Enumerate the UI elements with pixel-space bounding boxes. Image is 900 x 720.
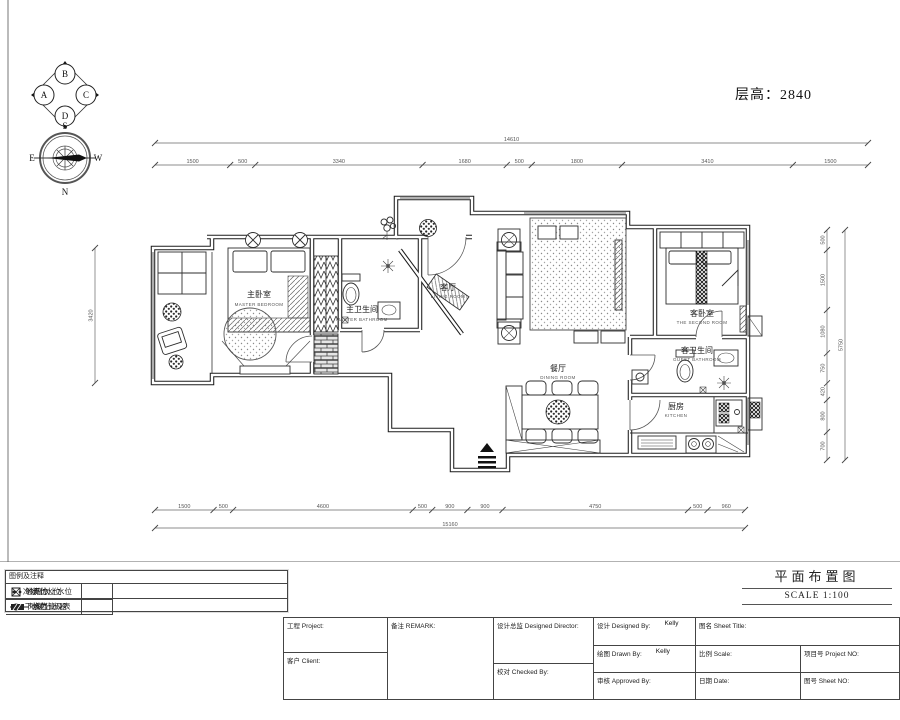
svg-text:4750: 4750 — [589, 504, 601, 510]
svg-text:500: 500 — [821, 235, 827, 244]
balcony-furniture — [157, 252, 206, 369]
drawing-sheet: B A C D S N E W — [0, 0, 900, 720]
compass-n: N — [62, 187, 69, 197]
tb-checked: 校对 Checked By: — [494, 664, 594, 699]
title-block: 工程 Project: 客户 Client: 备注 REMARK: 设计总监 D… — [283, 617, 900, 700]
room-label-kitchen: 厨房 — [668, 401, 684, 411]
svg-text:3340: 3340 — [333, 159, 345, 165]
plan-title: 平面布置图 — [742, 566, 892, 589]
svg-text:1800: 1800 — [571, 159, 583, 165]
room-sublabel-kitchen: KITCHEN — [665, 413, 688, 418]
room-sublabel-guest-bath: GUEST BATHROOM — [673, 357, 721, 362]
tb-sheet-title: 图名 Sheet Title: — [696, 618, 899, 646]
heating-manifold-icon — [10, 602, 26, 612]
svg-text:900: 900 — [445, 504, 454, 510]
floor-drain-icon — [700, 387, 706, 393]
room-sublabel-second-bedroom: THE SECOND ROOM — [677, 320, 728, 325]
floor-height-note: 层高：2840 — [735, 84, 812, 104]
plant-icon — [169, 355, 183, 369]
brick-wall — [314, 334, 338, 374]
tb-project-no: 项目号 Project NO: — [801, 646, 899, 673]
svg-text:15160: 15160 — [442, 522, 457, 528]
svg-text:800: 800 — [821, 411, 827, 420]
tv-living — [615, 240, 622, 310]
legend-item: 地暖分水器 — [6, 599, 102, 615]
tb-director: 设计总监 Designed Director: — [494, 618, 594, 664]
compass-w: W — [94, 153, 103, 163]
drawn-by-value: Kelly — [656, 648, 670, 655]
tb-approved: 审核 Approved By: — [594, 673, 696, 699]
floor-drain-icon — [738, 427, 744, 433]
plant-icon — [546, 400, 570, 424]
tb-date: 日期 Date: — [696, 673, 801, 699]
room-label-master-bath: 主卫生间 — [346, 304, 378, 314]
tb-remark: 备注 REMARK: — [388, 618, 494, 699]
compass-s: S — [62, 121, 67, 131]
wash-stand — [632, 370, 648, 384]
svg-text:500: 500 — [418, 504, 427, 510]
kitchen-fixtures — [630, 397, 748, 453]
tv-master — [240, 366, 290, 374]
room-label-guest-bath: 客卫生间 — [681, 345, 713, 355]
plant-icon — [420, 220, 437, 237]
plan-scale: SCALE 1:100 — [742, 589, 892, 605]
tb-scale: 比例 Scale: — [696, 646, 801, 673]
svg-text:1500: 1500 — [186, 159, 198, 165]
svg-text:700: 700 — [821, 441, 827, 450]
svg-text:1500: 1500 — [824, 159, 836, 165]
tb-project: 工程 Project: — [284, 618, 388, 653]
svg-text:420: 420 — [821, 387, 827, 396]
room-sublabel-master-bedroom: MASTER BEDROOM — [235, 302, 284, 307]
axis-diamond: B A C D — [31, 61, 99, 129]
room-sublabel-living: LIVING ROOM — [431, 294, 465, 299]
svg-text:1500: 1500 — [821, 274, 827, 286]
svg-text:500: 500 — [693, 504, 702, 510]
compass-rose-icon: S N E W — [29, 121, 103, 197]
axis-letter-a: A — [41, 90, 48, 100]
tv-bedroom — [740, 306, 746, 332]
svg-text:1680: 1680 — [459, 159, 471, 165]
living-room-furniture — [497, 218, 626, 344]
dining-furniture — [506, 381, 600, 453]
svg-text:4600: 4600 — [317, 504, 329, 510]
svg-text:500: 500 — [238, 159, 247, 165]
room-label-living: 客厅 — [440, 282, 456, 292]
svg-text:1500: 1500 — [178, 504, 190, 510]
legend-table: 图例及注释 地漏位 冷热水上水位 冷水上水位 下水位 燃气管及表 — [5, 570, 288, 612]
plant-icon — [163, 303, 181, 321]
compass-e: E — [29, 153, 35, 163]
svg-text:3420: 3420 — [89, 309, 95, 321]
axis-letter-b: B — [62, 69, 68, 79]
entrance-symbol — [478, 443, 496, 469]
cold-water-icon — [10, 587, 20, 597]
svg-text:960: 960 — [722, 504, 731, 510]
room-sublabel-dining: DINING ROOM — [540, 375, 575, 380]
tb-sheet-no: 图号 Sheet NO: — [801, 673, 899, 699]
room-sublabel-master-bath: MASTER BATHROOM — [336, 317, 388, 322]
svg-text:1080: 1080 — [821, 325, 827, 337]
room-label-dining: 餐厅 — [550, 364, 566, 373]
plan-caption: 平面布置图 SCALE 1:100 — [742, 566, 892, 605]
tb-drawn: 绘图 Drawn By:Kelly — [594, 646, 696, 673]
tb-designed: 设计 Designed By:Kelly — [594, 618, 696, 646]
room-label-second-bedroom: 客卧室 — [690, 308, 714, 318]
svg-text:14610: 14610 — [504, 137, 519, 143]
svg-text:900: 900 — [480, 504, 489, 510]
svg-text:750: 750 — [821, 364, 827, 373]
axis-letter-c: C — [83, 90, 89, 100]
svg-text:500: 500 — [515, 159, 524, 165]
ceiling-light-icon — [717, 376, 731, 390]
legend-title: 图例及注释 — [6, 571, 287, 584]
svg-text:3410: 3410 — [701, 159, 713, 165]
axis-letter-d: D — [62, 111, 69, 121]
room-label-master-bedroom: 主卧室 — [247, 289, 271, 299]
svg-text:500: 500 — [219, 504, 228, 510]
ceiling-light-icon — [381, 259, 395, 273]
designed-by-value: Kelly — [664, 620, 678, 627]
tb-client: 客户 Client: — [284, 653, 388, 699]
svg-text:5750: 5750 — [839, 339, 845, 351]
legend-item: 冷水上水位 — [6, 584, 102, 600]
